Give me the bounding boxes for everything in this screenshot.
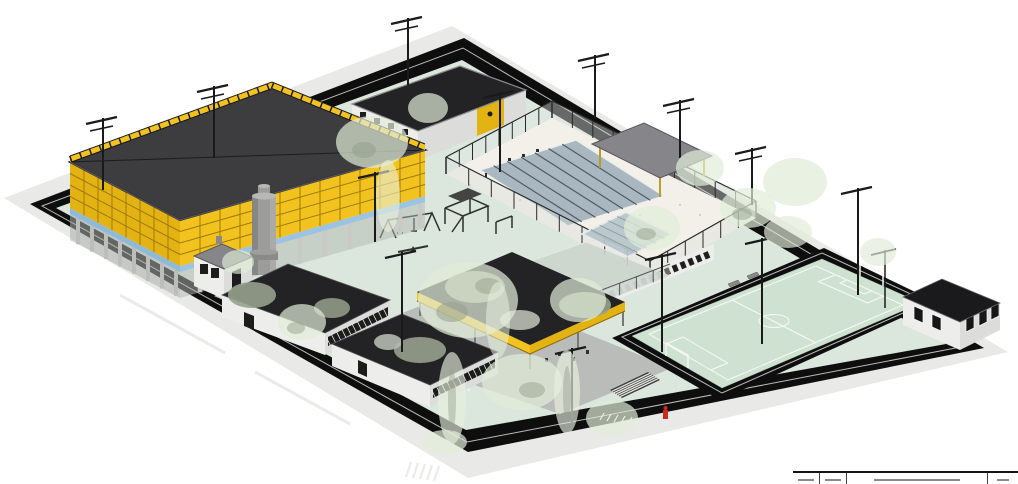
site-rendering-canvas (0, 0, 1018, 484)
tree-canopy (860, 238, 896, 266)
fire-hydrant (663, 406, 668, 419)
tree-canopy (586, 400, 638, 436)
title-block-cell (847, 473, 988, 484)
tree-canopy (676, 150, 724, 186)
title-block-cell-text (997, 479, 1009, 481)
water-tower (250, 184, 278, 275)
tree-canopy (550, 278, 606, 322)
crosswalk (406, 462, 439, 481)
title-block-cell (820, 473, 847, 484)
title-block-cell-text (874, 479, 961, 481)
title-block-cell-text (825, 479, 841, 481)
block-a-canopy-patch (228, 282, 276, 308)
guard-house-window (200, 264, 208, 274)
title-block-cell (793, 473, 820, 484)
water-tower-top (252, 193, 276, 200)
tree-tall (554, 350, 580, 434)
site-rendering-page (0, 0, 1018, 484)
tree-canopy (408, 93, 448, 123)
tree-canopy (222, 250, 254, 274)
guard-house-vent (216, 236, 222, 244)
tree-tall (376, 160, 400, 232)
tree-tall (486, 282, 510, 358)
guard-house-window (211, 268, 219, 278)
tree-canopy (764, 216, 812, 248)
title-block-cell-text (798, 479, 814, 481)
tree-canopy (482, 354, 562, 410)
tree-canopy (336, 116, 408, 168)
block-b-light-patch (374, 334, 402, 350)
title-block-cell (988, 473, 1018, 484)
tree-canopy (763, 158, 827, 206)
changing-rooms-sign (488, 112, 493, 117)
tree-tall (438, 352, 466, 444)
tree-canopy (624, 206, 680, 250)
tree-canopy (278, 304, 326, 340)
title-block (793, 471, 1018, 484)
